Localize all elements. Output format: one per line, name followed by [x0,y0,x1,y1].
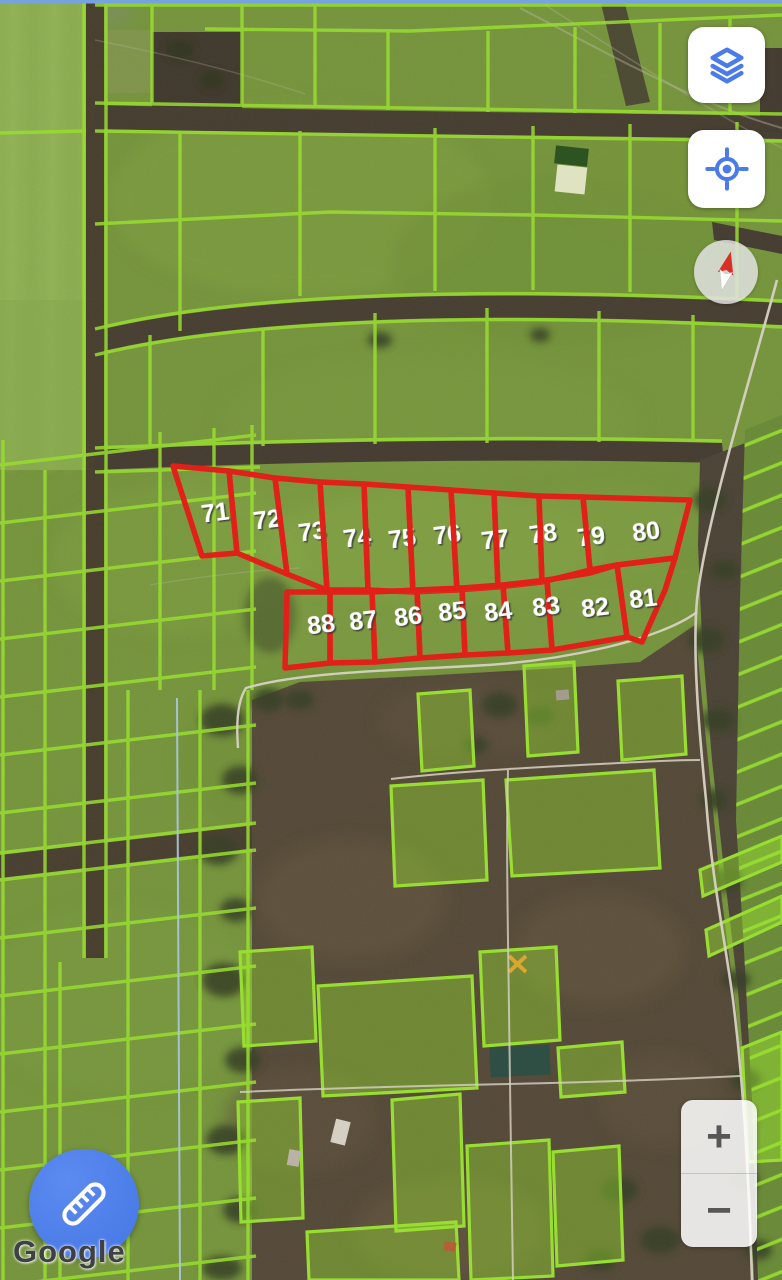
my-location-button[interactable] [688,130,765,208]
parcel-label-87: 87 [348,605,379,636]
zoom-out-button[interactable]: − [681,1174,757,1247]
map-app-screen: 717273747576777879808182838485868788 + − [0,0,782,1280]
layers-button[interactable] [688,27,765,103]
my-location-icon [704,146,750,192]
parcel-label-86: 86 [393,601,424,632]
parcel-label-88: 88 [306,609,337,640]
parcel-label-81: 81 [628,583,659,614]
parcel-label-82: 82 [580,592,611,623]
parcel-label-71: 71 [200,497,231,528]
parcel-label-83: 83 [531,591,562,622]
compass-button[interactable] [694,240,758,304]
zoom-in-button[interactable]: + [681,1100,757,1173]
ruler-icon [55,1175,113,1233]
layers-icon [704,42,750,88]
parcel-label-85: 85 [437,596,468,627]
compass-needle-icon [698,244,754,300]
map-canvas[interactable]: 717273747576777879808182838485868788 [0,0,782,1280]
google-logo: Google [13,1234,126,1270]
parcel-label-84: 84 [483,596,514,627]
parcel-label-80: 80 [631,516,662,547]
zoom-control: + − [681,1100,757,1247]
